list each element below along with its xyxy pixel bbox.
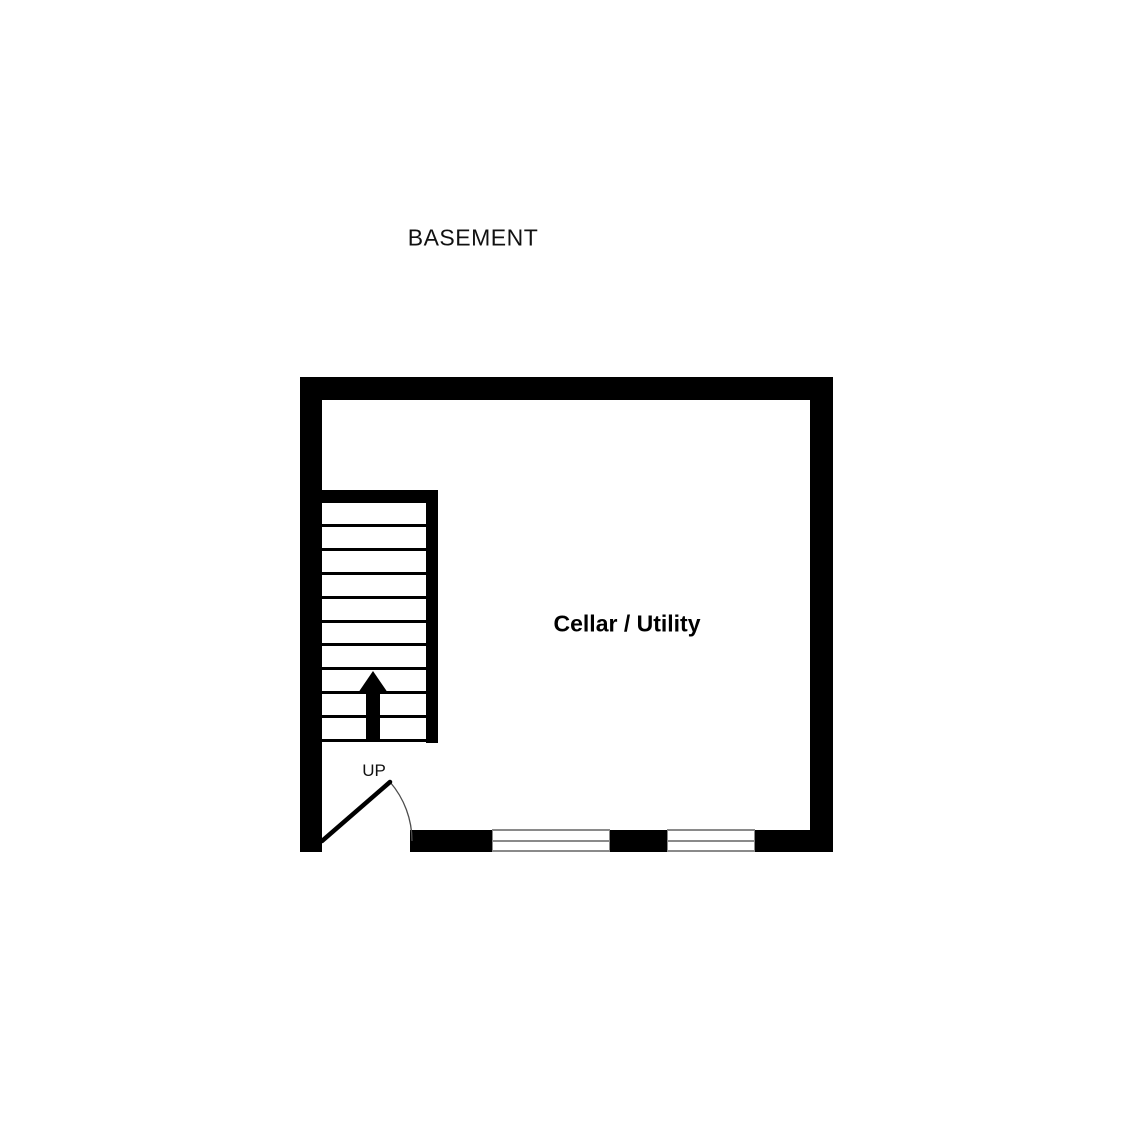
window-mullion [668, 840, 754, 842]
stairs-up-label: UP [362, 761, 386, 781]
window [667, 829, 755, 852]
wall-bottom-segment [410, 830, 492, 852]
wall-top [300, 377, 833, 400]
window-mullion [493, 840, 609, 842]
up-arrow-icon [366, 693, 380, 742]
wall-bottom-segment [755, 830, 833, 852]
stair-tread [322, 623, 426, 647]
wall-left [300, 377, 322, 852]
room-label: Cellar / Utility [554, 611, 701, 638]
floorplan-canvas: { "title": "BASEMENT", "floor_plan": { "… [0, 0, 1134, 1134]
window [492, 829, 610, 852]
stair-tread [322, 575, 426, 599]
stair-tread [322, 527, 426, 551]
page-title: BASEMENT [408, 225, 539, 252]
stair-tread [322, 646, 426, 670]
floor-plan: Cellar / Utility UP [300, 377, 833, 852]
wall-right [810, 377, 833, 852]
wall-bottom-segment [610, 830, 667, 852]
up-arrow-icon [358, 671, 388, 693]
door-swing-arc [390, 782, 412, 841]
door-leaf [322, 782, 390, 841]
stair-tread [322, 599, 426, 623]
stair-wall-right [426, 490, 438, 743]
stair-tread [322, 503, 426, 527]
stair-tread [322, 551, 426, 575]
stair-wall-top [322, 490, 438, 503]
